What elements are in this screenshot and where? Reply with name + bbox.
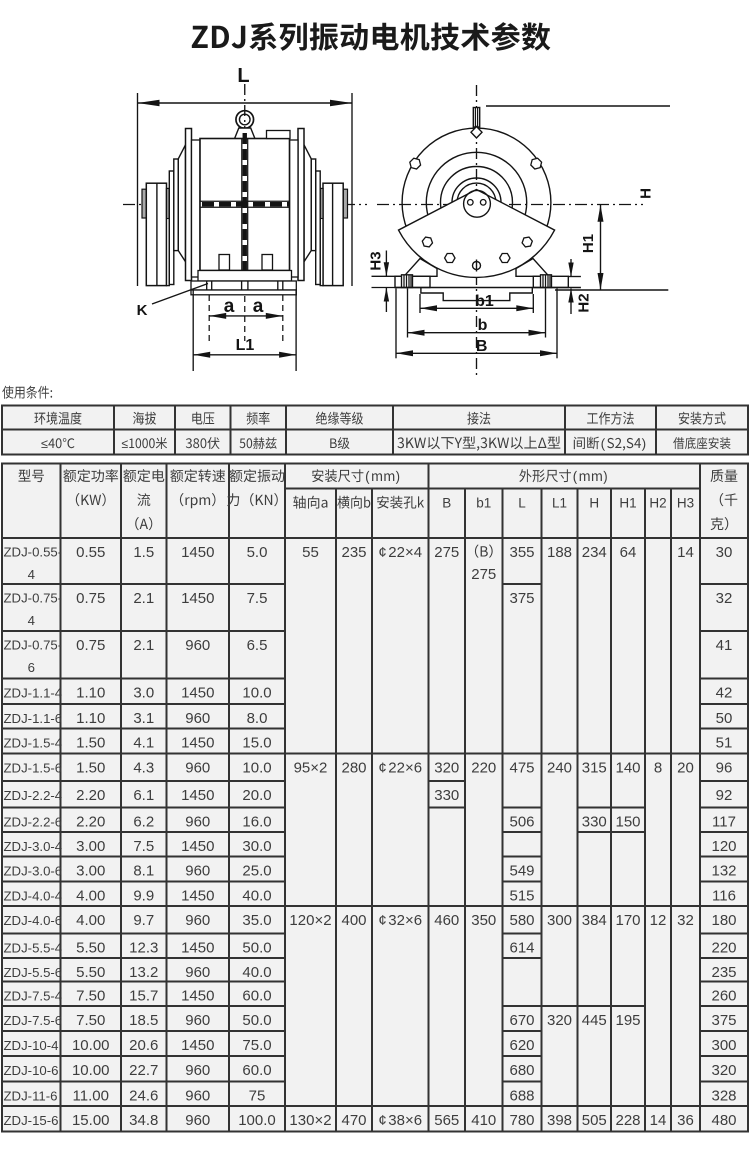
svg-text:1.50: 1.50 [76, 735, 105, 752]
svg-text:ZDJ-0.55-: ZDJ-0.55- [4, 545, 63, 560]
svg-text:15.00: 15.00 [72, 1112, 110, 1129]
svg-text:220: 220 [711, 940, 736, 957]
svg-text:410: 410 [471, 1112, 496, 1129]
svg-text:75.0: 75.0 [242, 1037, 271, 1054]
svg-text:ZDJ-3.0-4: ZDJ-3.0-4 [4, 839, 63, 854]
svg-text:b1: b1 [475, 293, 494, 310]
svg-text:6.5: 6.5 [247, 637, 268, 654]
svg-text:32: 32 [677, 912, 694, 929]
svg-text:25.0: 25.0 [242, 863, 271, 880]
svg-text:1.50: 1.50 [76, 760, 105, 777]
svg-text:H2: H2 [649, 496, 666, 511]
svg-text:ZDJ-1.1-4: ZDJ-1.1-4 [4, 686, 63, 701]
svg-text:6: 6 [28, 660, 35, 675]
svg-text:549: 549 [509, 863, 534, 880]
svg-text:7.5: 7.5 [133, 838, 154, 855]
svg-text:130×2: 130×2 [289, 1112, 331, 1129]
svg-text:H3: H3 [677, 496, 694, 511]
svg-text:330: 330 [434, 787, 459, 804]
svg-text:40.0: 40.0 [242, 888, 271, 905]
svg-text:13.2: 13.2 [129, 964, 158, 981]
svg-text:3.00: 3.00 [76, 838, 105, 855]
svg-text:375: 375 [509, 590, 534, 607]
svg-text:1450: 1450 [181, 590, 214, 607]
svg-text:960: 960 [185, 1088, 210, 1105]
svg-text:10.0: 10.0 [242, 760, 271, 777]
svg-text:120: 120 [711, 838, 736, 855]
svg-text:7.5: 7.5 [247, 590, 268, 607]
svg-text:16.0: 16.0 [242, 814, 271, 831]
svg-text:2.20: 2.20 [76, 787, 105, 804]
svg-text:H: H [638, 188, 655, 199]
svg-text:260: 260 [711, 988, 736, 1005]
svg-text:14: 14 [677, 544, 694, 561]
svg-text:4.00: 4.00 [76, 888, 105, 905]
svg-text:a: a [224, 296, 235, 317]
svg-text:ZDJ-2.2-4: ZDJ-2.2-4 [4, 788, 63, 803]
svg-text:300: 300 [547, 912, 572, 929]
svg-text:8: 8 [654, 760, 662, 777]
svg-text:ZDJ-11-6: ZDJ-11-6 [4, 1089, 58, 1104]
svg-text:0.75: 0.75 [76, 590, 105, 607]
svg-text:670: 670 [509, 1012, 534, 1029]
svg-text:ZDJ-1.5-4: ZDJ-1.5-4 [4, 736, 63, 751]
svg-text:ZDJ-3.0-6: ZDJ-3.0-6 [4, 864, 63, 879]
svg-text:620: 620 [509, 1037, 534, 1054]
svg-text:ZDJ-4.0-6: ZDJ-4.0-6 [4, 913, 63, 928]
svg-text:5.50: 5.50 [76, 964, 105, 981]
svg-text:506: 506 [509, 814, 534, 831]
svg-text:K: K [137, 302, 148, 319]
svg-text:8.1: 8.1 [133, 863, 154, 880]
svg-text:384: 384 [582, 912, 607, 929]
svg-text:475: 475 [509, 760, 534, 777]
svg-text:60.0: 60.0 [242, 988, 271, 1005]
svg-text:1450: 1450 [181, 735, 214, 752]
svg-text:75: 75 [249, 1088, 266, 1105]
svg-text:315: 315 [582, 760, 607, 777]
svg-text:14: 14 [650, 1112, 667, 1129]
svg-text:280: 280 [341, 760, 366, 777]
svg-text:ZDJ-4.0-4: ZDJ-4.0-4 [4, 889, 63, 904]
svg-text:1.10: 1.10 [76, 685, 105, 702]
svg-text:18.5: 18.5 [129, 1012, 158, 1029]
svg-text:H1: H1 [580, 234, 597, 253]
svg-text:9.7: 9.7 [133, 912, 154, 929]
svg-text:460: 460 [434, 912, 459, 929]
svg-text:ZDJ-10-4: ZDJ-10-4 [4, 1038, 59, 1053]
svg-text:4: 4 [28, 567, 35, 582]
svg-text:960: 960 [185, 710, 210, 727]
svg-text:2.20: 2.20 [76, 814, 105, 831]
svg-text:195: 195 [615, 1012, 640, 1029]
svg-text:ZDJ-5.5-6: ZDJ-5.5-6 [4, 965, 63, 980]
svg-text:6.1: 6.1 [133, 787, 154, 804]
svg-text:ZDJ-5.5-4: ZDJ-5.5-4 [4, 941, 63, 956]
svg-text:960: 960 [185, 912, 210, 929]
svg-text:40.0: 40.0 [242, 964, 271, 981]
svg-text:12: 12 [650, 912, 667, 929]
svg-text:170: 170 [615, 912, 640, 929]
svg-text:5.0: 5.0 [247, 544, 268, 561]
svg-text:220: 220 [471, 760, 496, 777]
svg-text:398: 398 [547, 1112, 572, 1129]
svg-text:1450: 1450 [181, 787, 214, 804]
svg-text:¢22×6: ¢22×6 [378, 760, 422, 777]
svg-text:960: 960 [185, 863, 210, 880]
svg-text:350: 350 [471, 912, 496, 929]
svg-text:180: 180 [711, 912, 736, 929]
svg-text:36: 36 [677, 1112, 694, 1129]
svg-text:7.50: 7.50 [76, 1012, 105, 1029]
svg-text:ZDJ-2.2-6: ZDJ-2.2-6 [4, 815, 63, 830]
svg-text:15.0: 15.0 [242, 735, 271, 752]
svg-text:117: 117 [712, 814, 736, 831]
svg-text:a: a [253, 296, 264, 317]
svg-text:41: 41 [716, 637, 733, 654]
svg-text:L: L [518, 496, 526, 511]
svg-text:580: 580 [509, 912, 534, 929]
svg-text:3.0: 3.0 [133, 685, 154, 702]
svg-text:51: 51 [716, 735, 733, 752]
svg-text:116: 116 [712, 888, 736, 905]
svg-text:24.6: 24.6 [129, 1088, 158, 1105]
svg-text:ZDJ-0.75-: ZDJ-0.75- [4, 591, 63, 606]
svg-text:240: 240 [547, 760, 572, 777]
svg-text:1.10: 1.10 [76, 710, 105, 727]
svg-text:96: 96 [716, 760, 733, 777]
svg-text:235: 235 [341, 544, 366, 561]
svg-text:1450: 1450 [181, 888, 214, 905]
svg-text:L: L [237, 65, 249, 87]
svg-text:50.0: 50.0 [242, 940, 271, 957]
svg-text:320: 320 [711, 1062, 736, 1079]
svg-text:4: 4 [28, 613, 35, 628]
svg-text:95×2: 95×2 [294, 760, 328, 777]
svg-text:¢38×6: ¢38×6 [378, 1112, 422, 1129]
svg-text:B: B [442, 496, 451, 511]
svg-text:20.6: 20.6 [129, 1037, 158, 1054]
svg-text:960: 960 [185, 1112, 210, 1129]
svg-text:ZDJ-10-6: ZDJ-10-6 [4, 1063, 59, 1078]
svg-text:328: 328 [711, 1088, 736, 1105]
svg-text:960: 960 [185, 637, 210, 654]
svg-text:4.3: 4.3 [133, 760, 154, 777]
svg-text:L1: L1 [236, 337, 255, 354]
svg-text:64: 64 [620, 544, 637, 561]
svg-text:320: 320 [547, 1012, 572, 1029]
svg-text:960: 960 [185, 1062, 210, 1079]
svg-text:960: 960 [185, 760, 210, 777]
svg-text:9.9: 9.9 [133, 888, 154, 905]
svg-text:565: 565 [434, 1112, 459, 1129]
svg-text:50.0: 50.0 [242, 1012, 271, 1029]
svg-text:H: H [589, 496, 599, 511]
svg-text:¢32×6: ¢32×6 [378, 912, 422, 929]
svg-text:3.00: 3.00 [76, 863, 105, 880]
svg-text:ZDJ-15-6: ZDJ-15-6 [4, 1113, 59, 1128]
svg-text:1450: 1450 [181, 940, 214, 957]
svg-text:680: 680 [509, 1062, 534, 1079]
svg-text:4.1: 4.1 [133, 735, 154, 752]
svg-text:ZDJ-7.5-4: ZDJ-7.5-4 [4, 989, 63, 1004]
svg-text:42: 42 [716, 685, 733, 702]
svg-text:1450: 1450 [181, 1037, 214, 1054]
svg-text:B: B [476, 338, 488, 355]
svg-text:60.0: 60.0 [242, 1062, 271, 1079]
svg-text:614: 614 [509, 940, 534, 957]
svg-text:30: 30 [716, 544, 733, 561]
svg-text:5.50: 5.50 [76, 940, 105, 957]
svg-text:32: 32 [716, 590, 733, 607]
svg-text:H3: H3 [368, 251, 385, 270]
svg-text:100.0: 100.0 [238, 1112, 276, 1129]
svg-text:H2: H2 [576, 293, 593, 312]
svg-text:515: 515 [509, 888, 534, 905]
svg-text:6.2: 6.2 [133, 814, 154, 831]
svg-text:92: 92 [716, 787, 733, 804]
svg-text:1.5: 1.5 [133, 544, 154, 561]
svg-text:3.1: 3.1 [133, 710, 154, 727]
svg-text:2.1: 2.1 [133, 590, 154, 607]
svg-text:7.50: 7.50 [76, 988, 105, 1005]
svg-text:960: 960 [185, 964, 210, 981]
svg-text:480: 480 [711, 1112, 736, 1129]
svg-text:30.0: 30.0 [242, 838, 271, 855]
svg-text:1450: 1450 [181, 838, 214, 855]
svg-text:275: 275 [434, 544, 459, 561]
svg-text:150: 150 [615, 814, 640, 831]
svg-text:11.00: 11.00 [73, 1088, 109, 1105]
svg-text:330: 330 [582, 814, 607, 831]
svg-text:22.7: 22.7 [129, 1062, 158, 1079]
svg-text:1450: 1450 [181, 988, 214, 1005]
svg-text:55: 55 [302, 544, 319, 561]
svg-text:445: 445 [582, 1012, 607, 1029]
svg-text:375: 375 [711, 1012, 736, 1029]
svg-text:140: 140 [615, 760, 640, 777]
svg-text:355: 355 [509, 544, 534, 561]
svg-text:¢22×4: ¢22×4 [378, 544, 422, 561]
svg-text:505: 505 [582, 1112, 607, 1129]
svg-text:0.75: 0.75 [76, 637, 105, 654]
svg-text:20: 20 [677, 760, 694, 777]
svg-text:4.00: 4.00 [76, 912, 105, 929]
svg-text:L1: L1 [552, 496, 567, 511]
svg-text:188: 188 [547, 544, 572, 561]
svg-text:ZDJ-0.75-: ZDJ-0.75- [4, 638, 63, 653]
svg-text:120×2: 120×2 [289, 912, 331, 929]
svg-text:400: 400 [341, 912, 366, 929]
svg-text:15.7: 15.7 [129, 988, 158, 1005]
svg-text:300: 300 [711, 1037, 736, 1054]
svg-text:234: 234 [582, 544, 607, 561]
svg-text:12.3: 12.3 [129, 940, 158, 957]
svg-text:H1: H1 [619, 496, 636, 511]
svg-text:780: 780 [509, 1112, 534, 1129]
svg-text:10.0: 10.0 [242, 685, 271, 702]
svg-text:1450: 1450 [181, 544, 214, 561]
svg-text:8.0: 8.0 [247, 710, 268, 727]
svg-text:ZDJ-7.5-6: ZDJ-7.5-6 [4, 1013, 63, 1028]
svg-text:470: 470 [341, 1112, 366, 1129]
svg-text:228: 228 [615, 1112, 640, 1129]
svg-text:0.55: 0.55 [76, 544, 105, 561]
svg-text:960: 960 [185, 814, 210, 831]
svg-text:34.8: 34.8 [129, 1112, 158, 1129]
svg-text:275: 275 [471, 566, 496, 583]
svg-text:2.1: 2.1 [133, 637, 154, 654]
svg-text:50: 50 [716, 710, 733, 727]
svg-text:b: b [478, 317, 488, 334]
svg-text:688: 688 [509, 1088, 534, 1105]
svg-text:132: 132 [711, 863, 736, 880]
svg-text:ZDJ-1.5-6: ZDJ-1.5-6 [4, 761, 63, 776]
svg-text:1450: 1450 [181, 685, 214, 702]
svg-text:35.0: 35.0 [242, 912, 271, 929]
svg-text:235: 235 [711, 964, 736, 981]
svg-text:b1: b1 [476, 496, 491, 511]
svg-text:20.0: 20.0 [242, 787, 271, 804]
svg-text:320: 320 [434, 760, 459, 777]
svg-text:10.00: 10.00 [72, 1062, 110, 1079]
svg-text:960: 960 [185, 1012, 210, 1029]
svg-text:ZDJ-1.1-6: ZDJ-1.1-6 [4, 711, 63, 726]
svg-text:10.00: 10.00 [72, 1037, 110, 1054]
